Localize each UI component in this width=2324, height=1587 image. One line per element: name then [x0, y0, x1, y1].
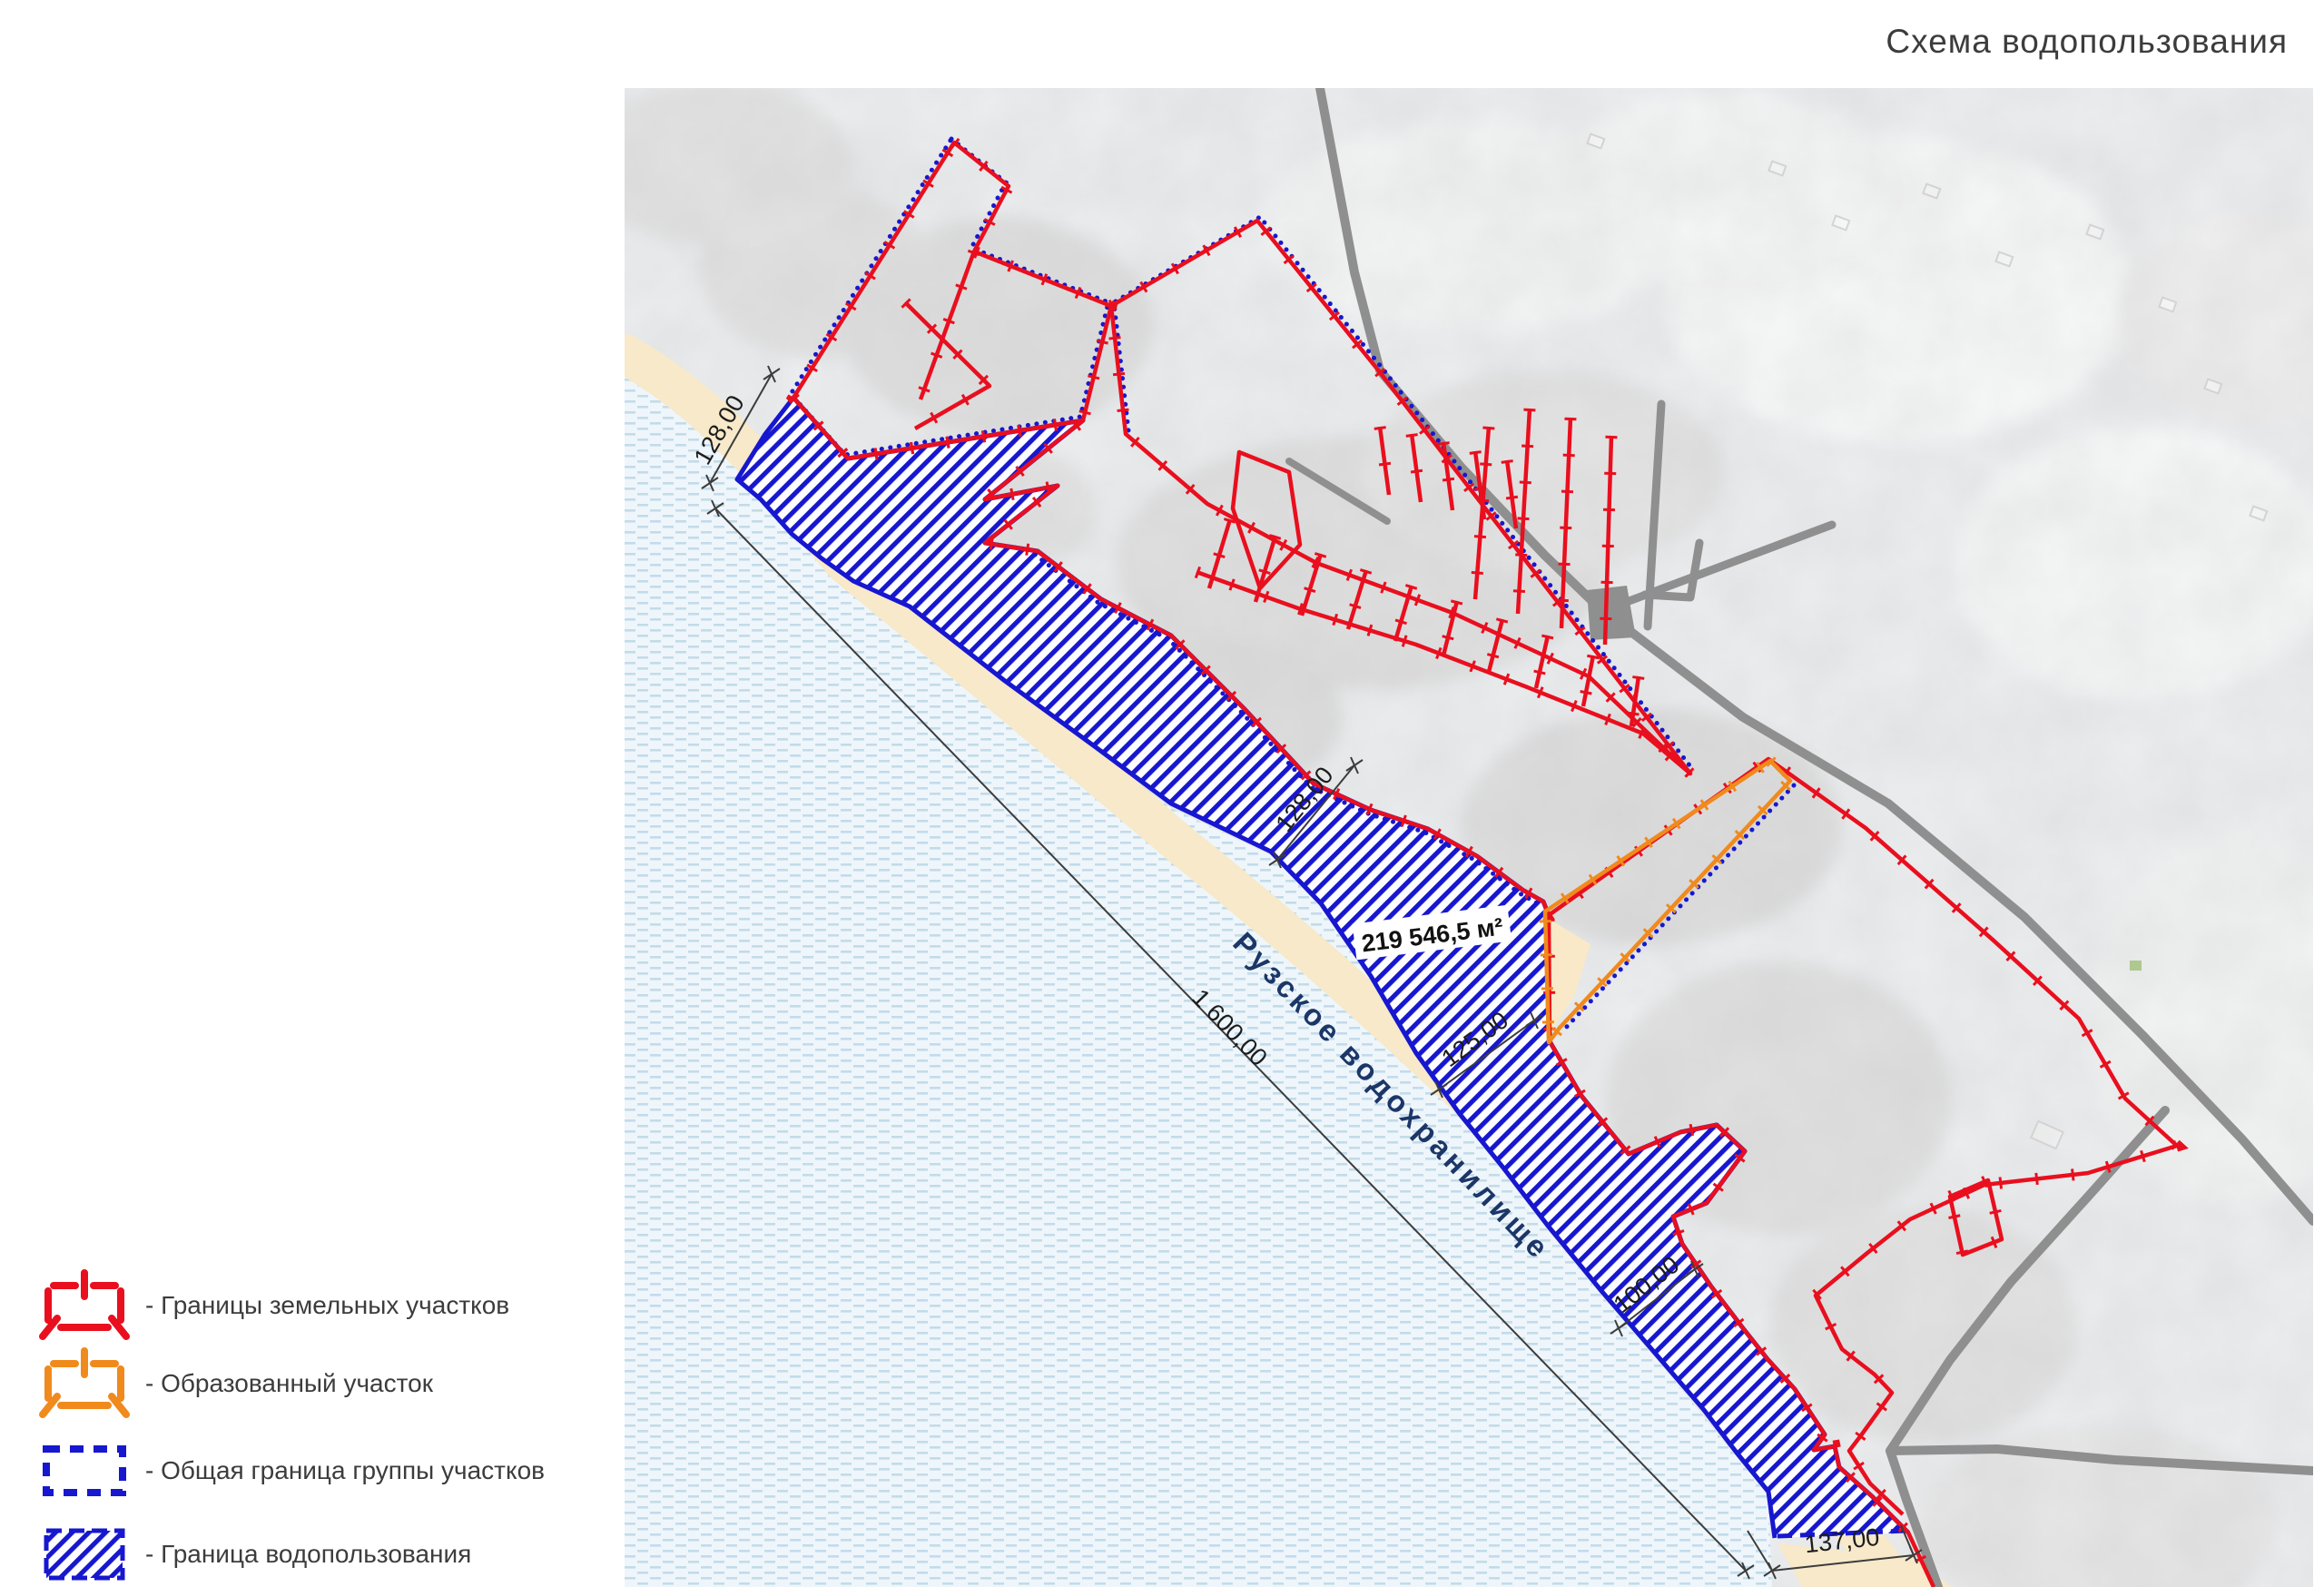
legend: - Границы земельных участков - Образован…: [43, 1273, 545, 1578]
legend-symbol-parcel-boundaries: [43, 1273, 126, 1336]
legend-label-group-boundary: - Общая граница группы участков: [145, 1456, 545, 1484]
scheme-canvas: 128,00 1 600,00 128,00 125,00 100,00 137…: [0, 0, 2324, 1587]
blue-dashed-rect-icon: [46, 1449, 123, 1493]
legend-label-parcel-boundaries: - Границы земельных участков: [145, 1291, 509, 1319]
blue-hatched-rect-icon: [46, 1531, 123, 1578]
map: 128,00 1 600,00 128,00 125,00 100,00 137…: [581, 82, 2324, 1587]
orange-parcel-icon: [43, 1351, 126, 1414]
legend-symbol-formed-parcel: [43, 1351, 126, 1414]
page-title: Схема водопользования: [1886, 23, 2288, 60]
legend-label-formed-parcel: - Образованный участок: [145, 1369, 434, 1397]
red-parcel-icon: [43, 1273, 126, 1336]
page: 128,00 1 600,00 128,00 125,00 100,00 137…: [0, 0, 2324, 1587]
legend-symbol-group-boundary: [46, 1449, 123, 1493]
legend-symbol-water-use: [46, 1531, 123, 1578]
legend-label-water-use: - Граница водопользования: [145, 1540, 471, 1568]
